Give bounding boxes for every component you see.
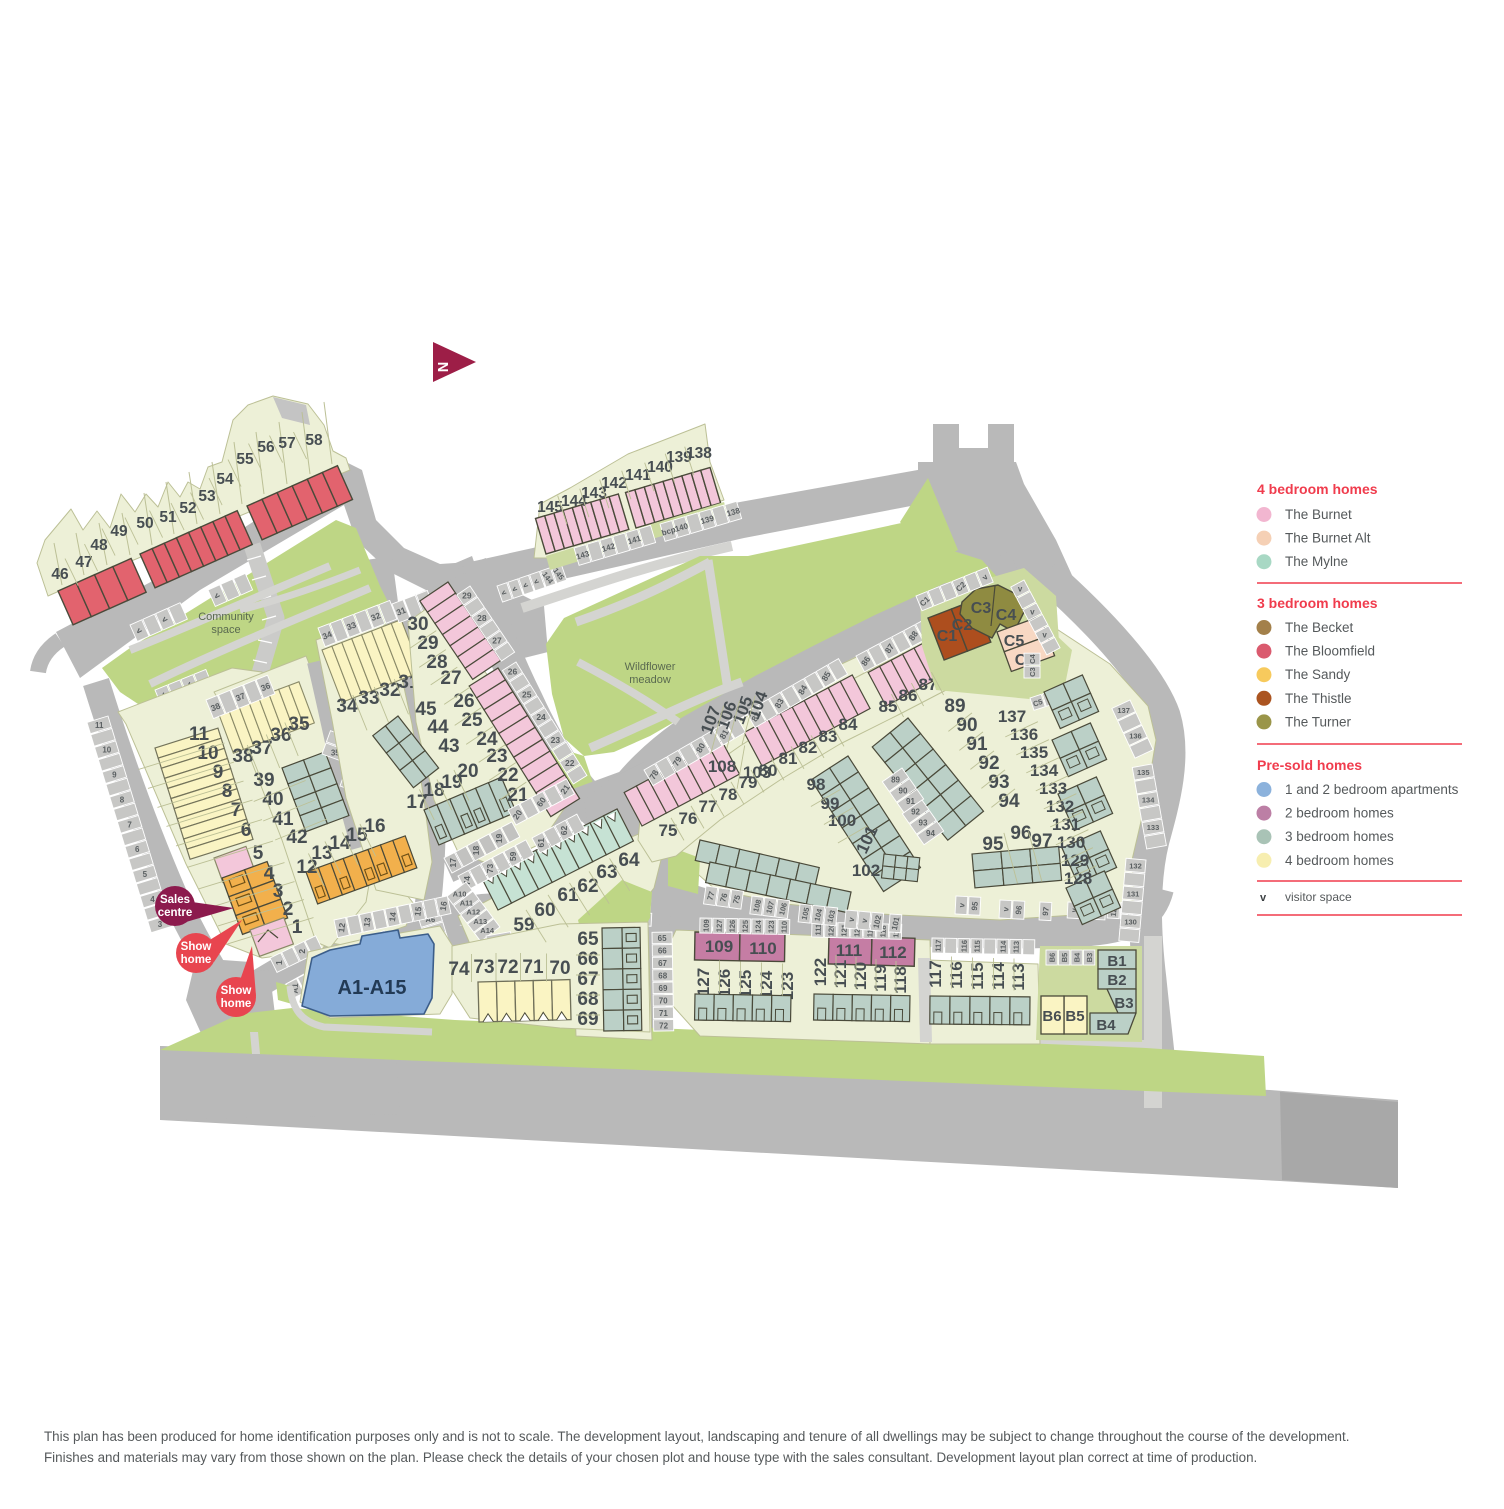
svg-text:3 bedroom homes: 3 bedroom homes [1257, 595, 1378, 611]
svg-text:62: 62 [559, 826, 569, 836]
svg-text:72: 72 [497, 957, 518, 978]
svg-text:110: 110 [780, 921, 789, 933]
svg-text:66: 66 [658, 946, 667, 955]
svg-text:C2: C2 [952, 617, 973, 634]
svg-text:118: 118 [891, 966, 910, 993]
svg-text:The Burnet: The Burnet [1285, 507, 1352, 522]
svg-text:68: 68 [658, 971, 667, 980]
svg-text:7: 7 [127, 820, 132, 829]
svg-text:Wildflower: Wildflower [625, 661, 676, 673]
svg-text:18: 18 [471, 846, 481, 856]
svg-text:71: 71 [522, 957, 544, 978]
svg-text:Show: Show [181, 941, 212, 953]
svg-text:95: 95 [970, 900, 980, 911]
svg-text:65: 65 [577, 929, 599, 950]
svg-text:90: 90 [956, 715, 977, 736]
svg-text:A13: A13 [473, 917, 487, 926]
svg-text:133: 133 [1147, 823, 1160, 832]
svg-text:46: 46 [51, 566, 69, 583]
svg-text:122: 122 [811, 958, 830, 986]
svg-text:132: 132 [1046, 797, 1074, 816]
svg-text:123: 123 [767, 920, 776, 933]
svg-text:110: 110 [749, 939, 776, 958]
svg-text:137: 137 [998, 707, 1026, 726]
svg-text:92: 92 [911, 808, 920, 817]
svg-text:11: 11 [95, 721, 104, 730]
svg-text:89: 89 [944, 696, 965, 717]
svg-text:135: 135 [1020, 743, 1048, 762]
svg-text:71: 71 [659, 1009, 668, 1018]
svg-text:12: 12 [336, 922, 347, 933]
svg-text:49: 49 [110, 523, 128, 540]
svg-text:137: 137 [1117, 706, 1130, 715]
svg-text:26: 26 [453, 691, 474, 712]
svg-text:Finishes and materials may var: Finishes and materials may vary from tho… [44, 1450, 1257, 1465]
svg-text:C3: C3 [1028, 667, 1037, 677]
svg-text:59: 59 [508, 851, 518, 861]
svg-text:132: 132 [1129, 862, 1142, 871]
svg-text:This plan has been produced fo: This plan has been produced for home ide… [44, 1429, 1349, 1444]
svg-text:40: 40 [262, 789, 283, 810]
svg-text:114: 114 [989, 962, 1008, 990]
svg-text:3 bedroom homes: 3 bedroom homes [1285, 829, 1394, 844]
svg-text:43: 43 [438, 736, 459, 757]
svg-text:C4: C4 [996, 607, 1017, 624]
svg-text:B1: B1 [1107, 953, 1126, 970]
svg-text:26: 26 [508, 666, 518, 676]
svg-text:7: 7 [231, 800, 242, 821]
svg-text:B5: B5 [1060, 953, 1069, 963]
svg-text:home: home [221, 998, 252, 1010]
svg-text:17: 17 [448, 858, 458, 868]
svg-text:47: 47 [75, 554, 92, 571]
svg-text:121: 121 [831, 960, 850, 988]
svg-text:109: 109 [705, 937, 733, 956]
svg-text:94: 94 [926, 829, 935, 838]
svg-text:The Burnet Alt: The Burnet Alt [1285, 531, 1371, 546]
svg-text:92: 92 [978, 753, 999, 774]
svg-text:96: 96 [1010, 823, 1031, 844]
svg-text:B5: B5 [1065, 1008, 1084, 1025]
svg-text:50: 50 [136, 515, 153, 532]
svg-text:visitor space: visitor space [1285, 890, 1352, 904]
svg-text:127: 127 [694, 968, 713, 996]
svg-text:B3: B3 [1085, 953, 1094, 963]
svg-text:N: N [436, 362, 452, 372]
svg-text:135: 135 [1137, 768, 1150, 777]
svg-text:The Turner: The Turner [1285, 714, 1352, 729]
svg-text:103: 103 [743, 763, 771, 782]
svg-text:19: 19 [441, 772, 462, 793]
svg-text:120: 120 [851, 962, 870, 990]
svg-text:94: 94 [998, 791, 1020, 812]
svg-text:8: 8 [222, 781, 233, 802]
svg-text:17: 17 [406, 792, 427, 813]
svg-text:28: 28 [477, 613, 487, 623]
svg-text:11: 11 [189, 724, 210, 745]
svg-text:70: 70 [659, 996, 668, 1005]
svg-text:95: 95 [982, 834, 1004, 855]
svg-text:38: 38 [232, 746, 253, 767]
svg-text:116: 116 [947, 961, 966, 988]
svg-text:102: 102 [852, 861, 880, 880]
svg-text:9: 9 [112, 771, 117, 780]
svg-text:39: 39 [253, 770, 274, 791]
svg-text:1 and 2 bedroom apartments: 1 and 2 bedroom apartments [1285, 782, 1459, 797]
svg-text:91: 91 [906, 797, 915, 806]
svg-text:2: 2 [297, 949, 307, 954]
svg-text:126: 126 [728, 920, 737, 933]
svg-text:115: 115 [968, 962, 987, 989]
svg-text:73: 73 [473, 957, 494, 978]
svg-text:v: v [1042, 631, 1047, 640]
svg-text:Show: Show [221, 985, 252, 997]
svg-text:67: 67 [658, 959, 667, 968]
svg-text:134: 134 [1142, 796, 1155, 805]
svg-text:54: 54 [216, 471, 234, 488]
svg-text:90: 90 [899, 786, 908, 795]
svg-text:72: 72 [659, 1021, 668, 1030]
svg-text:A1-A15: A1-A15 [338, 977, 407, 999]
svg-text:Sales: Sales [160, 894, 190, 906]
svg-text:52: 52 [179, 500, 196, 517]
svg-text:124: 124 [754, 919, 763, 933]
svg-text:The Mylne: The Mylne [1285, 554, 1348, 569]
svg-text:67: 67 [577, 969, 598, 990]
svg-text:133: 133 [1039, 779, 1067, 798]
svg-text:8: 8 [120, 795, 125, 804]
svg-text:A11: A11 [460, 898, 473, 907]
svg-text:A12: A12 [466, 908, 480, 917]
svg-text:3: 3 [273, 881, 284, 902]
svg-text:16: 16 [364, 816, 385, 837]
svg-text:22: 22 [565, 758, 575, 768]
svg-text:B4: B4 [1096, 1017, 1116, 1034]
svg-text:63: 63 [596, 862, 617, 883]
svg-text:70: 70 [549, 958, 570, 979]
svg-text:73: 73 [485, 864, 495, 874]
svg-text:55: 55 [236, 451, 254, 468]
svg-text:64: 64 [618, 850, 640, 871]
svg-text:125: 125 [741, 920, 750, 933]
svg-text:The Thistle: The Thistle [1285, 691, 1352, 706]
svg-text:116: 116 [960, 940, 969, 952]
svg-text:A10: A10 [453, 889, 467, 898]
svg-text:30: 30 [407, 614, 428, 635]
svg-text:space: space [211, 624, 240, 636]
svg-text:125: 125 [736, 970, 755, 998]
svg-text:60: 60 [534, 900, 555, 921]
svg-text:74: 74 [448, 959, 470, 980]
svg-text:1: 1 [274, 960, 284, 965]
svg-text:A14: A14 [480, 926, 495, 935]
svg-text:32: 32 [379, 680, 400, 701]
svg-text:58: 58 [305, 432, 323, 449]
svg-text:4: 4 [150, 895, 155, 904]
svg-text:25: 25 [522, 689, 532, 699]
svg-text:29: 29 [462, 591, 472, 601]
svg-text:10: 10 [102, 746, 111, 755]
svg-text:117: 117 [926, 960, 945, 987]
svg-text:C3: C3 [971, 600, 992, 617]
svg-text:91: 91 [966, 734, 988, 755]
svg-text:1: 1 [292, 917, 303, 938]
svg-text:B3: B3 [1114, 995, 1133, 1012]
svg-text:The Becket: The Becket [1285, 620, 1354, 635]
svg-text:57: 57 [278, 435, 295, 452]
svg-text:131: 131 [1127, 889, 1140, 898]
svg-text:27: 27 [492, 635, 502, 645]
svg-text:113: 113 [1012, 941, 1021, 953]
svg-text:108: 108 [708, 757, 736, 776]
svg-text:5: 5 [143, 870, 148, 879]
svg-text:111: 111 [813, 924, 823, 936]
svg-text:69: 69 [659, 984, 668, 993]
svg-text:66: 66 [577, 949, 598, 970]
svg-text:13: 13 [361, 917, 372, 928]
svg-text:19: 19 [494, 833, 504, 843]
svg-text:23: 23 [551, 735, 561, 745]
svg-text:14: 14 [387, 911, 398, 922]
svg-text:4 bedroom homes: 4 bedroom homes [1285, 853, 1394, 868]
svg-text:B4: B4 [1073, 952, 1082, 963]
svg-text:Pre-sold homes: Pre-sold homes [1257, 757, 1362, 773]
svg-text:C4: C4 [1028, 653, 1037, 663]
svg-text:Community: Community [198, 611, 254, 623]
svg-text:113: 113 [1009, 963, 1028, 990]
svg-text:68: 68 [577, 989, 598, 1010]
svg-text:B6: B6 [1048, 953, 1057, 963]
svg-text:35: 35 [288, 714, 310, 735]
svg-text:51: 51 [159, 509, 177, 526]
svg-text:115: 115 [973, 940, 982, 952]
svg-text:62: 62 [577, 876, 598, 897]
svg-text:2 bedroom homes: 2 bedroom homes [1285, 806, 1394, 821]
svg-text:v: v [1260, 892, 1267, 904]
svg-text:6: 6 [135, 845, 140, 854]
svg-text:C5: C5 [1004, 633, 1025, 650]
svg-text:4 bedroom homes: 4 bedroom homes [1257, 481, 1378, 497]
svg-text:23: 23 [486, 746, 507, 767]
svg-text:centre: centre [158, 907, 193, 919]
svg-text:134: 134 [1030, 761, 1059, 780]
svg-text:61: 61 [536, 838, 546, 848]
svg-text:126: 126 [715, 969, 734, 997]
svg-text:119: 119 [871, 964, 890, 991]
svg-text:96: 96 [1014, 904, 1024, 915]
svg-text:114: 114 [999, 940, 1008, 953]
svg-text:111: 111 [836, 941, 863, 960]
svg-text:9: 9 [213, 762, 224, 783]
svg-text:16: 16 [438, 900, 449, 911]
svg-text:5: 5 [253, 843, 264, 864]
svg-text:142: 142 [601, 475, 627, 492]
svg-text:84: 84 [839, 715, 858, 734]
svg-text:B6: B6 [1042, 1008, 1061, 1025]
svg-text:meadow: meadow [629, 674, 671, 686]
svg-text:v: v [1030, 608, 1035, 617]
svg-text:130: 130 [1124, 917, 1137, 926]
svg-text:61: 61 [557, 885, 579, 906]
svg-text:The Sandy: The Sandy [1285, 667, 1351, 682]
svg-text:v: v [1018, 585, 1023, 594]
svg-text:93: 93 [919, 818, 928, 827]
svg-text:109: 109 [702, 919, 711, 932]
svg-text:89: 89 [891, 776, 900, 785]
svg-text:home: home [181, 954, 212, 966]
svg-text:127: 127 [715, 919, 724, 932]
svg-text:97: 97 [1031, 831, 1052, 852]
svg-text:48: 48 [90, 537, 108, 554]
svg-text:The Bloomfield: The Bloomfield [1285, 644, 1375, 659]
svg-text:65: 65 [658, 934, 667, 943]
svg-text:44: 44 [427, 717, 449, 738]
svg-text:97: 97 [1041, 906, 1051, 917]
svg-text:136: 136 [1129, 731, 1142, 740]
svg-text:53: 53 [198, 488, 216, 505]
svg-text:42: 42 [286, 827, 307, 848]
svg-text:117: 117 [934, 939, 943, 951]
svg-text:24: 24 [536, 712, 546, 722]
svg-text:15: 15 [412, 906, 423, 917]
svg-text:69: 69 [577, 1009, 598, 1030]
svg-text:112: 112 [879, 943, 906, 962]
svg-text:B2: B2 [1107, 972, 1126, 989]
svg-text:98: 98 [807, 775, 826, 794]
svg-text:138: 138 [686, 445, 712, 462]
